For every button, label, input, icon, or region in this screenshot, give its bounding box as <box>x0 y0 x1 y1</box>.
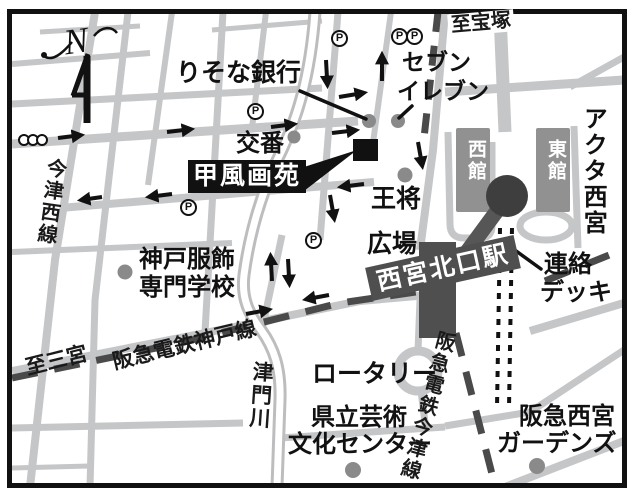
fashion-school-label-line2: 専門学校 <box>139 275 235 300</box>
acta-label: アクタ西宮 <box>580 106 605 246</box>
seven-eleven-label-line1: セブン <box>402 50 471 74</box>
deck-label-line1: 連絡 <box>544 252 592 277</box>
parking-icon: P <box>331 30 348 47</box>
west-building-label: 西館 <box>462 139 489 183</box>
osho-label: 王将 <box>371 186 421 212</box>
osho-dot <box>398 168 413 183</box>
deck-label-line2: デッキ <box>540 280 612 305</box>
tsuto-river-label: 津門川 <box>247 360 273 430</box>
risona-bank-label: りそな銀行 <box>176 60 301 86</box>
plaza-label: 広場 <box>367 231 417 257</box>
deck-hub-circle <box>486 175 528 217</box>
parking-icon: P <box>406 28 423 45</box>
arts-center-dot <box>345 462 361 478</box>
fashion-school-label-line1: 神戸服飾 <box>139 247 235 272</box>
arts-center-label-line1: 県立芸術 <box>311 405 407 430</box>
access-map: N りそな銀行 交番 甲風画苑 セブン イレブン 王将 広場 神戸服飾 専門学校… <box>0 0 637 501</box>
parking-icon: P <box>180 199 197 216</box>
risona-bank-dot <box>362 114 376 128</box>
koban-label: 交番 <box>236 131 284 156</box>
traffic-light-icon <box>19 135 47 145</box>
rotary-label: ロータリー <box>312 361 437 387</box>
gallery-title: 甲風画苑 <box>188 160 306 193</box>
parking-icon: P <box>247 103 264 120</box>
gardens-label-line2: ガーデンズ <box>497 431 617 456</box>
east-building-label: 東館 <box>542 139 569 183</box>
gallery-square <box>353 139 378 161</box>
parking-icon: P <box>305 232 322 249</box>
fashion-school-dot <box>118 265 133 280</box>
koban-dot <box>288 131 301 144</box>
seven-pointer <box>399 106 412 118</box>
hankyu-imazu-line-south <box>456 333 492 474</box>
gardens-label-line1: 阪急西宮 <box>519 404 615 429</box>
seven-eleven-label-line2: イレブン <box>397 79 489 103</box>
gardens-dot <box>529 458 545 474</box>
